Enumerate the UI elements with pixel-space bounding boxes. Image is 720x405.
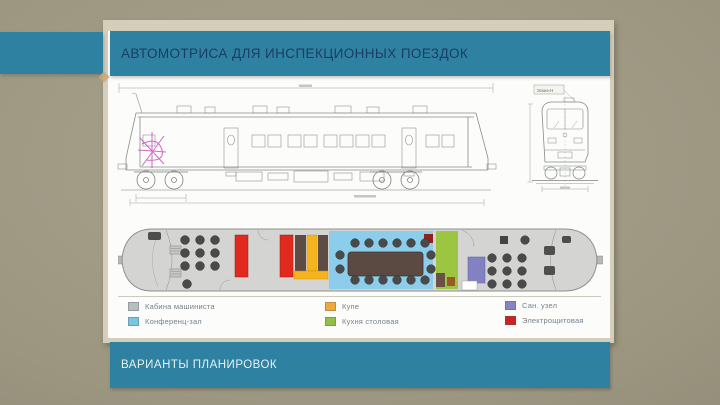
legend-label-cab: Кабина машиниста [145,302,215,311]
title-bar-left-strip [0,32,103,74]
slide-background: АВТОМОТРИСА ДЛЯ ИНСПЕКЦИОННЫХ ПОЕЗДОК [0,0,720,405]
front-view-annotation: Эскиз-Н [537,88,554,93]
legend-label-kitchen: Кухня столовая [342,317,399,326]
legend-swatch-kupe [325,302,336,311]
legend-item-wc: Сан. узел [505,301,557,310]
slide-title-bar: АВТОМОТРИСА ДЛЯ ИНСПЕКЦИОННЫХ ПОЕЗДОК [110,31,610,76]
slide-title: АВТОМОТРИСА ДЛЯ ИНСПЕКЦИОННЫХ ПОЕЗДОК [110,46,468,61]
legend-swatch-cab [128,302,139,311]
legend-item-conference: Конференц-зал [128,317,202,326]
railcar-side-view-drawing [116,80,506,206]
legend-swatch-electrical [505,316,516,325]
legend-item-kupe: Купе [325,302,359,311]
footer-title: ВАРИАНТЫ ПЛАНИРОВОК [110,359,277,371]
legend-item-cab: Кабина машиниста [128,302,215,311]
legend-item-kitchen: Кухня столовая [325,317,399,326]
railcar-floor-plan [118,227,603,299]
legend-swatch-conference [128,317,139,326]
legend-label-conference: Конференц-зал [145,317,202,326]
legend-label-kupe: Купе [342,302,359,311]
legend-label-wc: Сан. узел [522,301,557,310]
legend-swatch-wc [505,301,516,310]
legend-item-electrical: Электрощитовая [505,316,584,325]
footer-bar: ВАРИАНТЫ ПЛАНИРОВОК [110,342,610,388]
railcar-front-view-drawing: Эскиз-Н [524,82,606,202]
legend-label-electrical: Электрощитовая [522,316,584,325]
legend-swatch-kitchen [325,317,336,326]
